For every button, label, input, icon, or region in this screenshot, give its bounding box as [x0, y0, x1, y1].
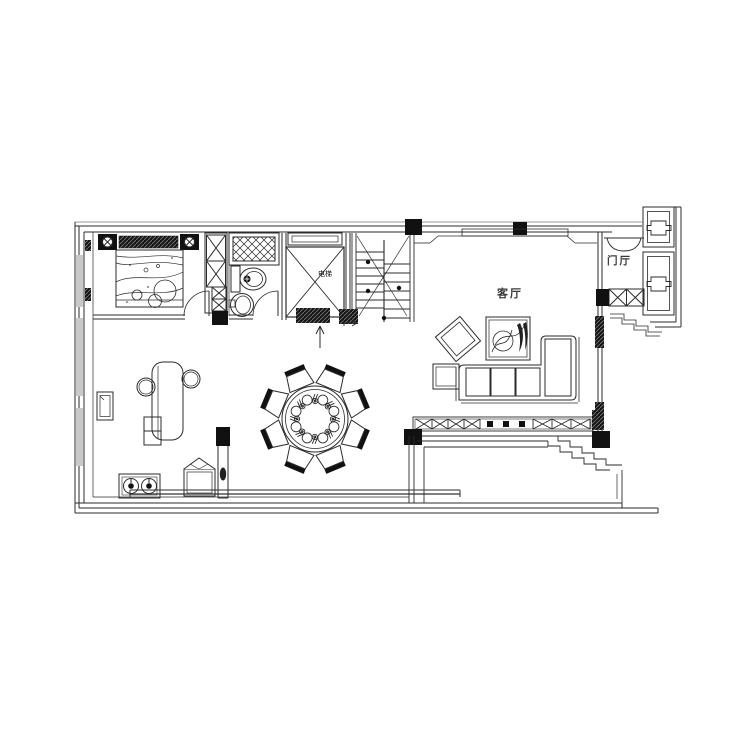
headboard	[119, 236, 178, 248]
floor-plan-canvas: 电梯	[0, 0, 740, 740]
toilet	[231, 266, 266, 292]
nightstand-right	[180, 234, 199, 250]
floor-plan-drawing: 电梯	[0, 0, 740, 740]
living-room-label: 客厅	[496, 286, 523, 300]
console-table	[604, 238, 644, 251]
exterior-walls	[75, 207, 681, 513]
armchair	[435, 316, 480, 361]
elevator: 电梯	[286, 233, 350, 348]
tv-cabinet	[404, 410, 610, 448]
pilaster-top	[643, 207, 674, 247]
partition-column	[216, 427, 230, 498]
bathroom-door	[253, 291, 278, 316]
bedroom	[93, 234, 209, 319]
bed	[116, 250, 183, 308]
dining-set	[259, 363, 371, 475]
living-room: 客厅	[404, 286, 622, 503]
nightstand-left	[98, 234, 117, 250]
washbasin	[229, 294, 254, 317]
foyer-label: 门厅	[607, 254, 632, 267]
stair-up-arrow	[316, 326, 324, 348]
pilaster-bottom	[643, 252, 674, 315]
area-rug	[486, 317, 530, 360]
wardrobe	[205, 233, 228, 325]
stool-right	[182, 370, 200, 388]
entry-steps	[610, 314, 662, 336]
bottom-left-furnishings	[119, 427, 230, 498]
terrace-walls	[409, 436, 622, 503]
round-dining-table	[282, 386, 348, 452]
desk	[152, 362, 183, 440]
study-area	[97, 362, 200, 445]
bathroom	[229, 233, 286, 320]
foyer-cabinet	[596, 289, 644, 306]
side-table	[433, 364, 459, 389]
wall-panel	[97, 392, 113, 420]
shower	[229, 233, 279, 265]
elevator-label: 电梯	[318, 269, 332, 278]
